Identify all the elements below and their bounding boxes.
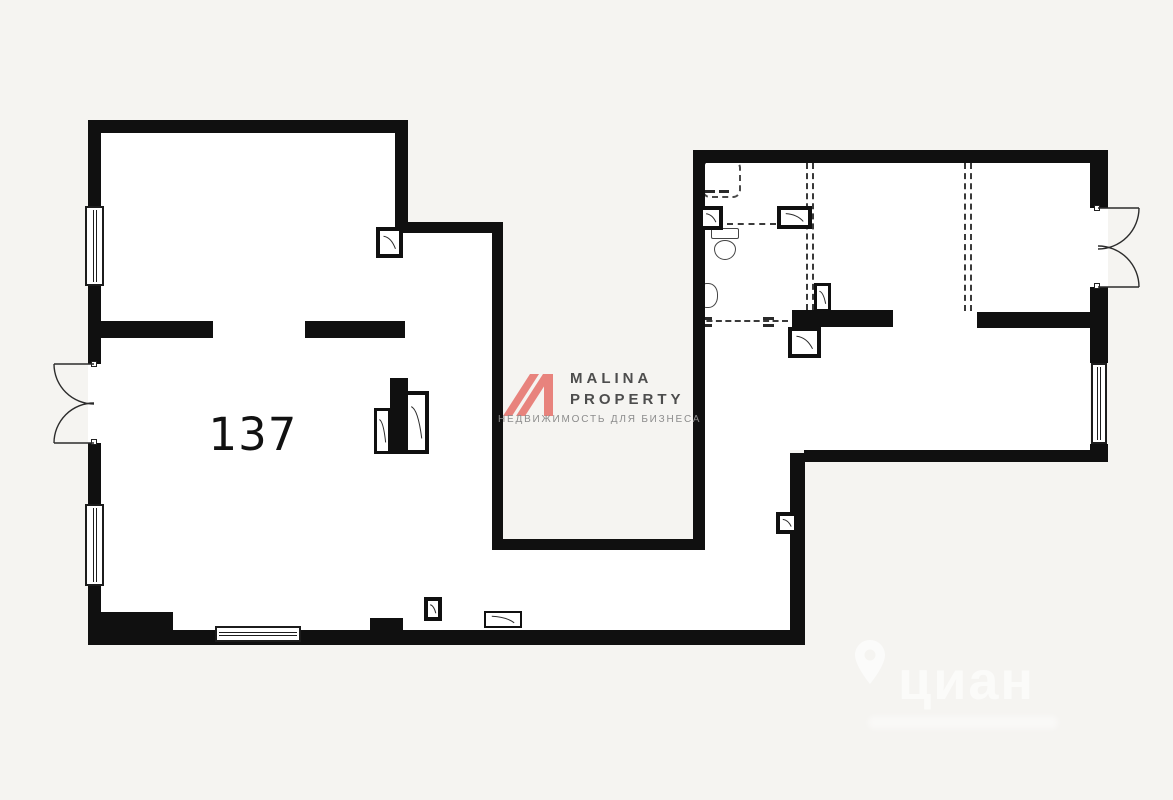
watermark-blur-line bbox=[868, 716, 1058, 729]
watermark-brand: циан bbox=[898, 650, 1035, 712]
wall bbox=[88, 586, 101, 630]
door-hinge bbox=[91, 361, 97, 367]
wall bbox=[395, 120, 408, 232]
floor-area bbox=[705, 163, 1090, 450]
malina-property-logo: MALINA PROPERTY НЕДВИЖИМОСТЬ ДЛЯ БИЗНЕСА bbox=[496, 370, 696, 432]
service-box bbox=[699, 206, 723, 230]
wall bbox=[101, 321, 213, 338]
logo-title-line1: MALINA bbox=[570, 370, 652, 387]
door-panel bbox=[814, 283, 831, 312]
wall bbox=[977, 312, 1090, 328]
window bbox=[85, 504, 104, 586]
wall bbox=[370, 618, 403, 631]
malina-logo-mark bbox=[496, 370, 556, 420]
floor-area bbox=[1090, 208, 1108, 287]
service-box bbox=[776, 512, 798, 534]
dash-mark bbox=[763, 317, 774, 320]
flap-line bbox=[429, 602, 437, 616]
wall bbox=[88, 286, 101, 364]
door-panel bbox=[374, 408, 391, 454]
dash-mark bbox=[763, 324, 774, 327]
wall bbox=[693, 150, 1108, 163]
dashed-partition bbox=[806, 163, 814, 310]
wall bbox=[395, 222, 503, 233]
door-hinge bbox=[1094, 205, 1100, 211]
wall bbox=[1090, 152, 1108, 208]
dash-mark bbox=[719, 190, 729, 193]
flap-line bbox=[704, 211, 718, 225]
floor-area bbox=[88, 364, 101, 443]
wall bbox=[1090, 287, 1108, 363]
door-hinge bbox=[1094, 283, 1100, 289]
dash-mark bbox=[705, 190, 715, 193]
floor-area bbox=[705, 450, 790, 550]
cian-watermark: циан bbox=[840, 636, 1090, 746]
wall bbox=[804, 450, 1108, 462]
flap-line bbox=[487, 614, 519, 625]
window bbox=[215, 626, 301, 642]
wall bbox=[305, 321, 405, 338]
logo-tagline: НЕДВИЖИМОСТЬ ДЛЯ БИЗНЕСА bbox=[498, 414, 701, 425]
wall bbox=[88, 120, 408, 133]
dashed-partition bbox=[727, 223, 776, 225]
window-frame bbox=[1097, 367, 1101, 440]
wall bbox=[792, 310, 893, 327]
window-frame bbox=[93, 210, 97, 282]
door-panel bbox=[484, 611, 522, 628]
floor-area bbox=[492, 550, 805, 630]
flap-line bbox=[378, 412, 387, 450]
wall bbox=[88, 443, 101, 504]
flap-line bbox=[781, 517, 793, 529]
dashed-partition bbox=[697, 320, 788, 322]
dashed-partition bbox=[964, 163, 972, 311]
service-box bbox=[777, 206, 812, 229]
service-box bbox=[788, 327, 821, 358]
door-hinge bbox=[91, 439, 97, 445]
location-pin-icon bbox=[852, 638, 888, 688]
window-frame bbox=[219, 632, 297, 636]
flap-line bbox=[818, 287, 827, 308]
service-box bbox=[376, 227, 403, 258]
window bbox=[85, 206, 104, 286]
logo-title-line2: PROPERTY bbox=[570, 391, 685, 408]
flap-line bbox=[782, 211, 807, 224]
room-area-label: 137 bbox=[198, 408, 308, 461]
wall bbox=[492, 539, 705, 550]
service-box bbox=[424, 597, 442, 621]
flap-line bbox=[409, 396, 424, 449]
flap-line bbox=[793, 332, 816, 353]
flap-line bbox=[381, 232, 398, 253]
window bbox=[1091, 363, 1107, 444]
floor-plan: 137 MALINA PROPERTY НЕДВИЖИМОСТЬ ДЛЯ БИЗ… bbox=[0, 0, 1173, 800]
wall bbox=[88, 120, 101, 206]
logo-mark-stroke bbox=[544, 374, 553, 416]
door-panel bbox=[404, 391, 429, 454]
window-frame bbox=[93, 508, 97, 582]
floor-area bbox=[101, 133, 395, 630]
wall bbox=[790, 453, 805, 645]
